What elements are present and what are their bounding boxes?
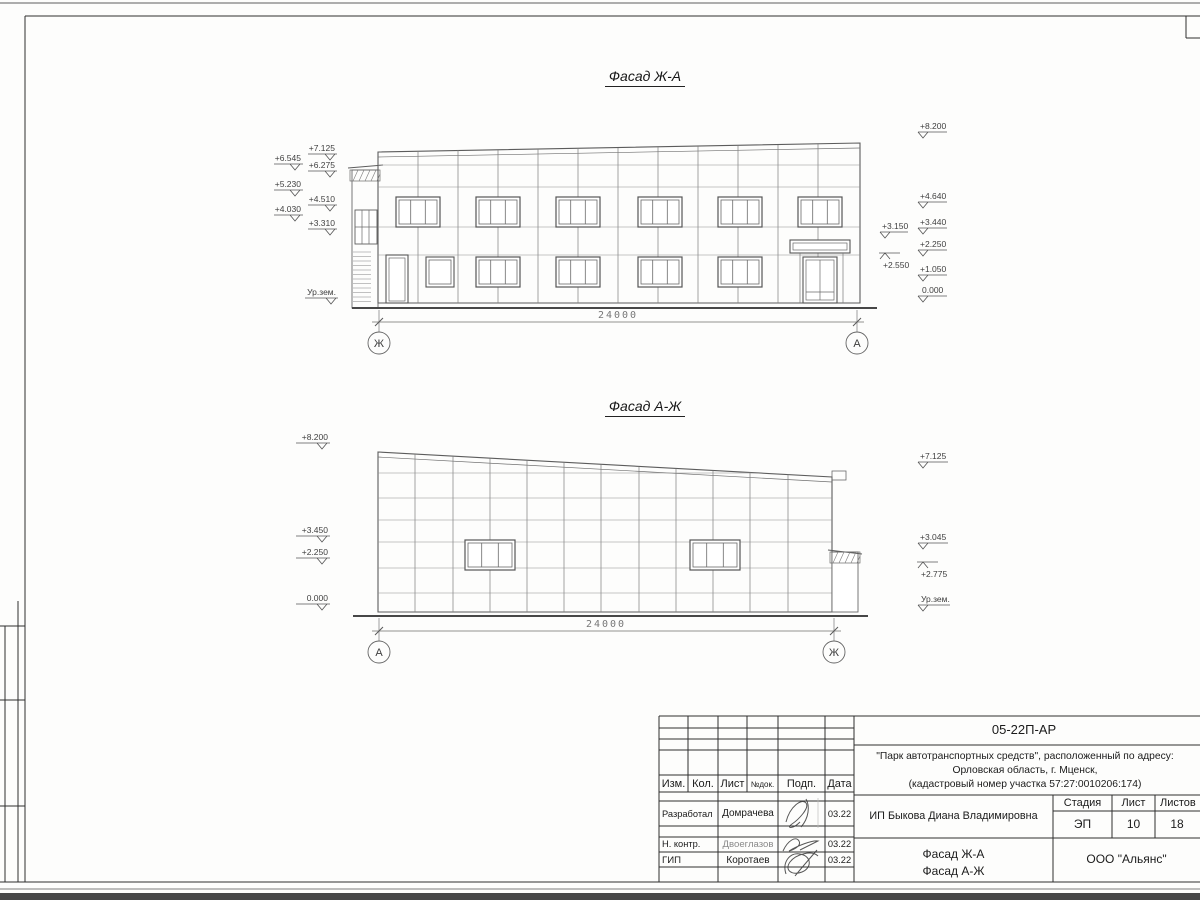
elevation-mark-label: +3.150 (882, 221, 909, 231)
col-header-kol: Кол. (688, 779, 718, 790)
facade-2-elevation-marks-right: +7.125 +3.045 +2.775 Ур.зем. (917, 451, 950, 611)
elevation-mark-label: +8.200 (302, 432, 329, 442)
elevation-mark-label: +6.545 (275, 153, 302, 163)
facade-1-drawing: 24000 Ж А +7.125 +6.545 +6.275 +5.230 +4… (274, 121, 947, 354)
elevation-mark-label: 0.000 (922, 285, 944, 295)
elevation-mark-label: +3.045 (920, 532, 947, 542)
signature-razrabotal (786, 799, 808, 828)
facade-2-title: Фасад А-Ж (545, 398, 745, 414)
row-nkontr-name: Двоеглазов (718, 840, 778, 850)
elevation-mark-label: +6.275 (309, 160, 336, 170)
elevation-mark-label: +5.230 (275, 179, 302, 189)
sheet-value: 10 (1112, 818, 1155, 830)
doc-code: 05-22П-АР (854, 723, 1194, 736)
client-name: ИП Быкова Диана Владимировна (854, 811, 1053, 822)
col-header-izm: Изм. (659, 779, 688, 790)
facade-1-axis-right: А (853, 338, 861, 350)
col-header-list: Лист (718, 779, 747, 790)
row-razrabotal-role: Разработал (662, 810, 713, 819)
elevation-mark-label: +2.550 (883, 260, 910, 270)
elevation-mark-label: Ур.зем. (921, 594, 950, 604)
elevation-mark-label: +3.310 (309, 218, 336, 228)
elevation-mark-label: +4.030 (275, 204, 302, 214)
stage-label: Стадия (1053, 798, 1112, 809)
facade-2-elevation-marks-left: +8.200 +3.450 +2.250 0.000 (296, 432, 330, 610)
elevation-mark-label: +7.125 (920, 451, 947, 461)
elevation-mark-label: +1.050 (920, 264, 947, 274)
facade-1-axis-left: Ж (374, 338, 384, 350)
elevation-mark-label: +7.125 (309, 143, 336, 153)
sheets-label: Листов (1160, 798, 1196, 809)
row-razrabotal-name: Домрачева (718, 809, 778, 819)
stage-value: ЭП (1053, 818, 1112, 830)
facade-1-elevation-marks-right: +8.200 +4.640 +3.440 +3.150 +2.250 +2.55… (879, 121, 947, 302)
elevation-mark-label: +3.450 (302, 525, 329, 535)
signature-gip (785, 850, 818, 876)
elevation-mark-label: Ур.зем. (307, 287, 336, 297)
facade-1-dimension-label: 24000 (598, 310, 638, 321)
col-header-ndok: №док. (747, 781, 778, 789)
row-gip-role: ГИП (662, 856, 681, 866)
facade-1-elevation-marks-left: +7.125 +6.545 +6.275 +5.230 +4.510 +4.03… (274, 143, 338, 304)
elevation-mark-label: +3.440 (920, 217, 947, 227)
company-name: ООО "Альянс" (1053, 853, 1200, 865)
facade-2-dimension: 24000 А Ж (368, 618, 845, 663)
row-gip-name: Коротаев (718, 856, 778, 866)
row-nkontr-role: Н. контр. (662, 840, 700, 849)
row-razrabotal-date: 03.22 (825, 810, 854, 819)
facade-2-drawing: 24000 А Ж +8.200 +3.450 +2.250 0.000 +7.… (296, 432, 950, 663)
elevation-mark-label: +4.510 (309, 194, 336, 204)
signature-nkontr (783, 839, 818, 851)
row-nkontr-date: 03.22 (825, 840, 854, 849)
elevation-mark-label: 0.000 (307, 593, 329, 603)
facade-1-title: Фасад Ж-А (545, 68, 745, 84)
facade-2-axis-right: Ж (829, 647, 839, 659)
elevation-mark-label: +8.200 (920, 121, 947, 131)
sheet-label: Лист (1112, 798, 1155, 809)
col-header-data: Дата (825, 779, 854, 790)
sheet-title: Фасад Ж-АФасад А-Ж (854, 846, 1053, 880)
side-stamp (0, 601, 25, 882)
elevation-mark-label: +2.775 (921, 569, 948, 579)
elevation-mark-label: +2.250 (302, 547, 329, 557)
facade-1-dimension: 24000 Ж А (368, 310, 868, 354)
facade-2-dimension-label: 24000 (586, 619, 626, 630)
facade-2-axis-left: А (375, 647, 383, 659)
col-header-podp: Подп. (778, 779, 825, 790)
drawing-sheet: 24000 Ж А +7.125 +6.545 +6.275 +5.230 +4… (0, 0, 1200, 900)
project-address: "Парк автотранспортных средств", располо… (856, 750, 1194, 792)
row-gip-date: 03.22 (825, 856, 854, 865)
elevation-mark-label: +4.640 (920, 191, 947, 201)
elevation-mark-label: +2.250 (920, 239, 947, 249)
sheets-value: 18 (1155, 818, 1199, 830)
